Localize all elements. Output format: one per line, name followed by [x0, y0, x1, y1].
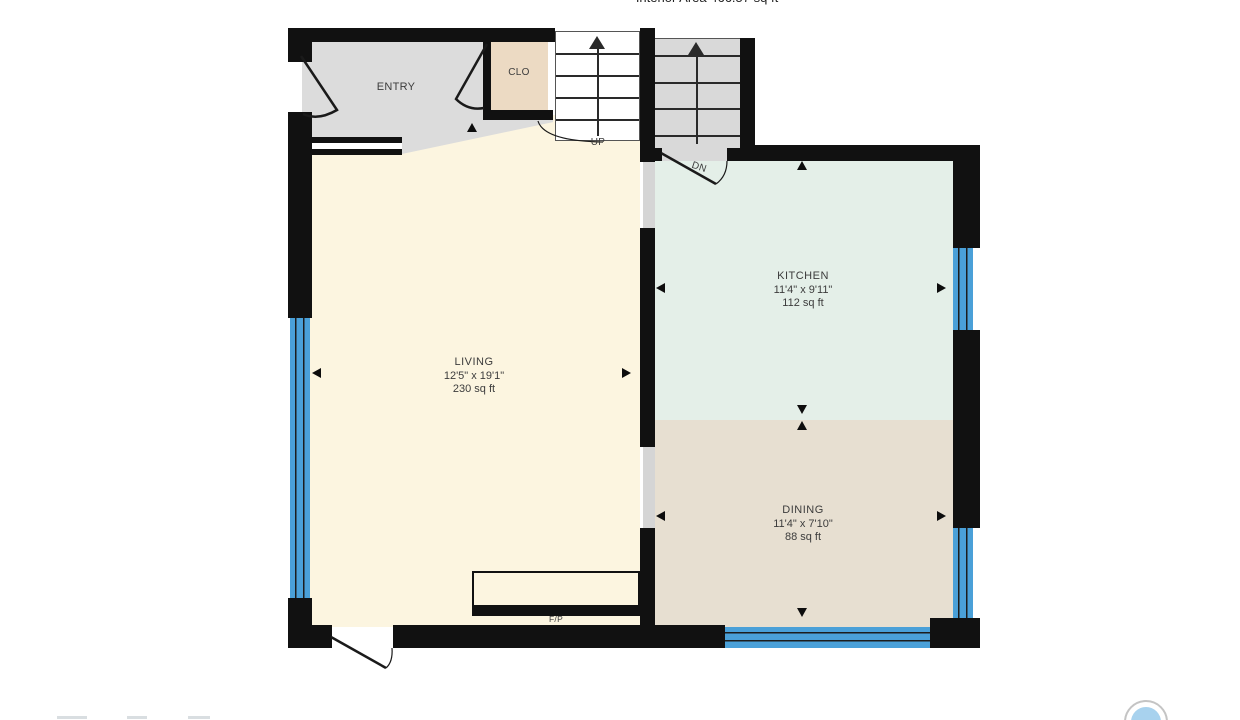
wall-opening — [643, 162, 655, 228]
dim-arrow-kitchen-left — [656, 283, 665, 293]
dim-arrow-living-right — [622, 368, 631, 378]
wall-opening — [643, 447, 655, 528]
dim-arrow-dining-left — [656, 511, 665, 521]
wall — [640, 528, 655, 627]
exterior-door-arc — [386, 648, 392, 668]
clipped-text-mark — [127, 716, 147, 719]
exterior-door-leaf — [331, 637, 386, 668]
dim-arrow-dining-top — [797, 421, 807, 430]
stair-tread — [655, 135, 740, 137]
living-room-label: LIVING 12'5" x 19'1" 230 sq ft — [394, 356, 554, 397]
watermark-logo-inner — [1131, 707, 1161, 720]
living-room-area: 230 sq ft — [394, 383, 554, 397]
fireplace-label: F/P — [472, 614, 640, 624]
clipped-text-mark — [57, 716, 87, 719]
stair-tread — [655, 82, 740, 84]
wall — [655, 148, 662, 161]
kitchen-area: 112 sq ft — [723, 297, 883, 311]
stair-direction-line — [597, 46, 599, 136]
half-wall-stripe — [312, 143, 402, 149]
entry-label: ENTRY — [336, 81, 456, 94]
stair-direction-line — [696, 52, 698, 144]
wall — [740, 145, 980, 161]
fireplace-hearth — [472, 571, 640, 607]
wall — [727, 148, 740, 161]
wall — [483, 110, 553, 120]
stairs-up-label: UP — [578, 136, 618, 149]
dim-arrow-dining-bottom — [797, 608, 807, 617]
wall — [288, 28, 555, 42]
wall — [288, 112, 312, 318]
stair-tread — [655, 108, 740, 110]
kitchen-name: KITCHEN — [723, 270, 883, 284]
interior-area-label: Interior Area 466.57 sq ft — [540, 0, 874, 5]
kitchen-dims: 11'4" x 9'11" — [723, 284, 883, 298]
stair-up-arrow-icon — [589, 36, 605, 49]
floor-plan: Interior Area 466.57 sq ft F/P — [0, 0, 1240, 720]
dim-arrow-kitchen-bottom — [797, 405, 807, 414]
dining-room-area: 88 sq ft — [723, 531, 883, 545]
living-room-name: LIVING — [394, 356, 554, 370]
wall — [640, 28, 655, 162]
wall — [930, 618, 980, 648]
stair-tread — [655, 55, 740, 57]
kitchen-label: KITCHEN 11'4" x 9'11" 112 sq ft — [723, 270, 883, 311]
wall — [393, 625, 725, 648]
wall — [288, 28, 312, 62]
dining-room-dims: 11'4" x 7'10" — [723, 518, 883, 532]
wall — [740, 38, 755, 148]
dining-room-name: DINING — [723, 504, 883, 518]
wall — [953, 330, 980, 528]
dining-room-label: DINING 11'4" x 7'10" 88 sq ft — [723, 504, 883, 545]
window-dining-bottom — [725, 627, 930, 648]
dim-arrow-living-left — [312, 368, 321, 378]
living-room-dims: 12'5" x 19'1" — [394, 370, 554, 384]
dim-arrow-kitchen-top — [797, 161, 807, 170]
wall — [953, 148, 980, 248]
window-living-left — [290, 318, 310, 598]
window-kitchen-right — [953, 248, 973, 330]
clipped-text-mark — [188, 716, 210, 719]
dim-arrow-dining-right — [937, 511, 946, 521]
dim-arrow-living-top — [467, 123, 477, 132]
wall — [288, 625, 332, 648]
closet-label: CLO — [489, 66, 549, 79]
window-dining-right — [953, 528, 973, 618]
dim-arrow-kitchen-right — [937, 283, 946, 293]
watermark-logo-icon — [1124, 700, 1168, 720]
stair-up-arrow-icon — [688, 42, 704, 55]
wall — [640, 228, 655, 447]
